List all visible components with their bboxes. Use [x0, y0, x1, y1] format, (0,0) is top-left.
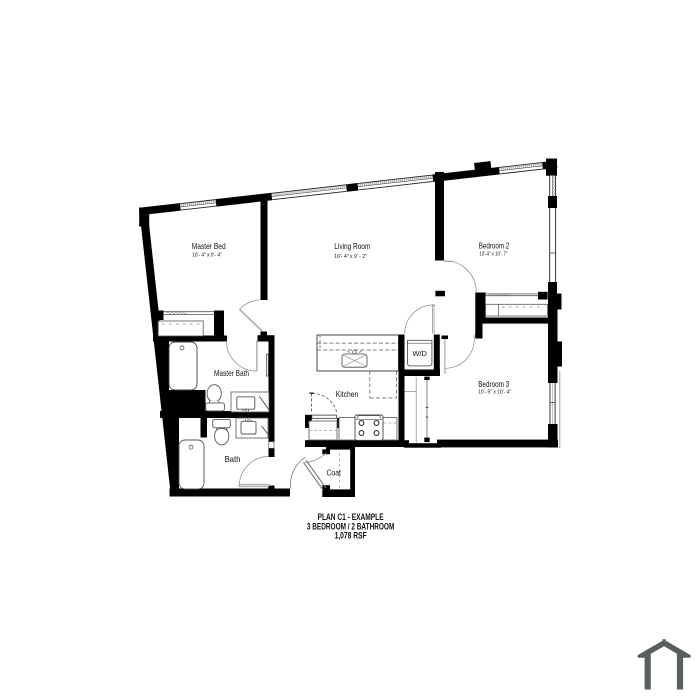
- svg-text:10'- 5" x 10'- 4": 10'- 5" x 10'- 4": [478, 389, 511, 395]
- svg-text:W/D: W/D: [412, 349, 427, 358]
- svg-text:Master Bed: Master Bed: [192, 241, 226, 251]
- svg-text:Bath: Bath: [225, 454, 241, 464]
- svg-text:Bedroom 2: Bedroom 2: [479, 241, 510, 251]
- svg-text:1,078 RSF: 1,078 RSF: [335, 530, 367, 540]
- svg-text:Bedroom 3: Bedroom 3: [478, 379, 509, 389]
- svg-text:10'-4" x 10'- 7": 10'-4" x 10'- 7": [479, 251, 507, 257]
- svg-text:Master Bath: Master Bath: [214, 368, 249, 378]
- svg-text:10'- 4" x 9'- 4": 10'- 4" x 9'- 4": [192, 253, 222, 259]
- svg-text:PLAN C1 - EXAMPLE: PLAN C1 - EXAMPLE: [318, 512, 384, 522]
- svg-text:Kitchen: Kitchen: [336, 389, 359, 399]
- svg-text:16'- 4" x 9' - 2": 16'- 4" x 9' - 2": [334, 254, 367, 260]
- svg-text:Coat: Coat: [326, 468, 341, 477]
- svg-text:Living Room: Living Room: [334, 241, 370, 251]
